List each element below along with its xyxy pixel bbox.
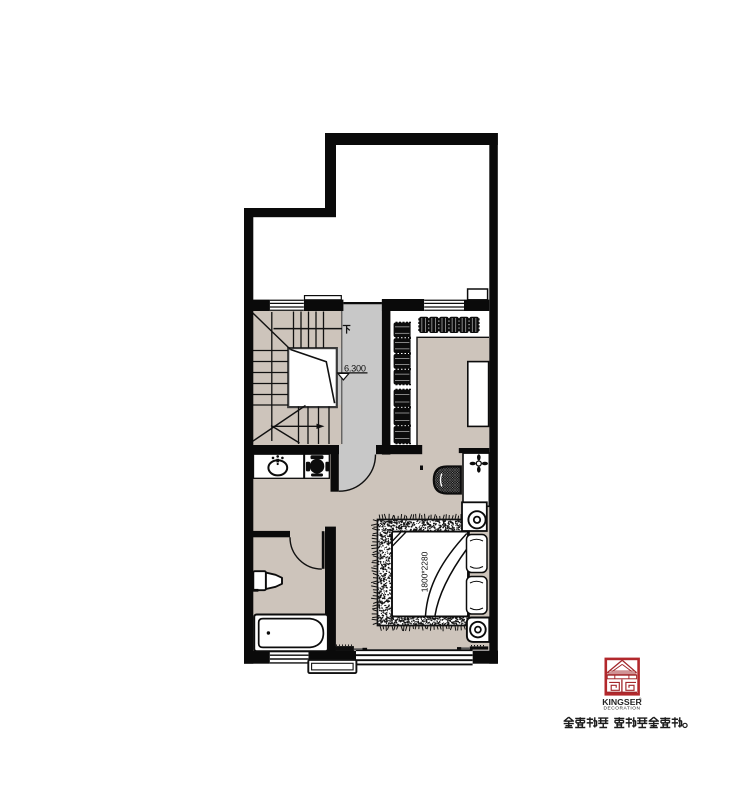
svg-text:1800*2280: 1800*2280	[420, 551, 430, 592]
svg-text:DECORATION: DECORATION	[603, 706, 640, 712]
svg-text:6.300: 6.300	[344, 363, 366, 373]
svg-text:KINGSER: KINGSER	[602, 697, 642, 707]
svg-text:®: ®	[639, 697, 642, 702]
